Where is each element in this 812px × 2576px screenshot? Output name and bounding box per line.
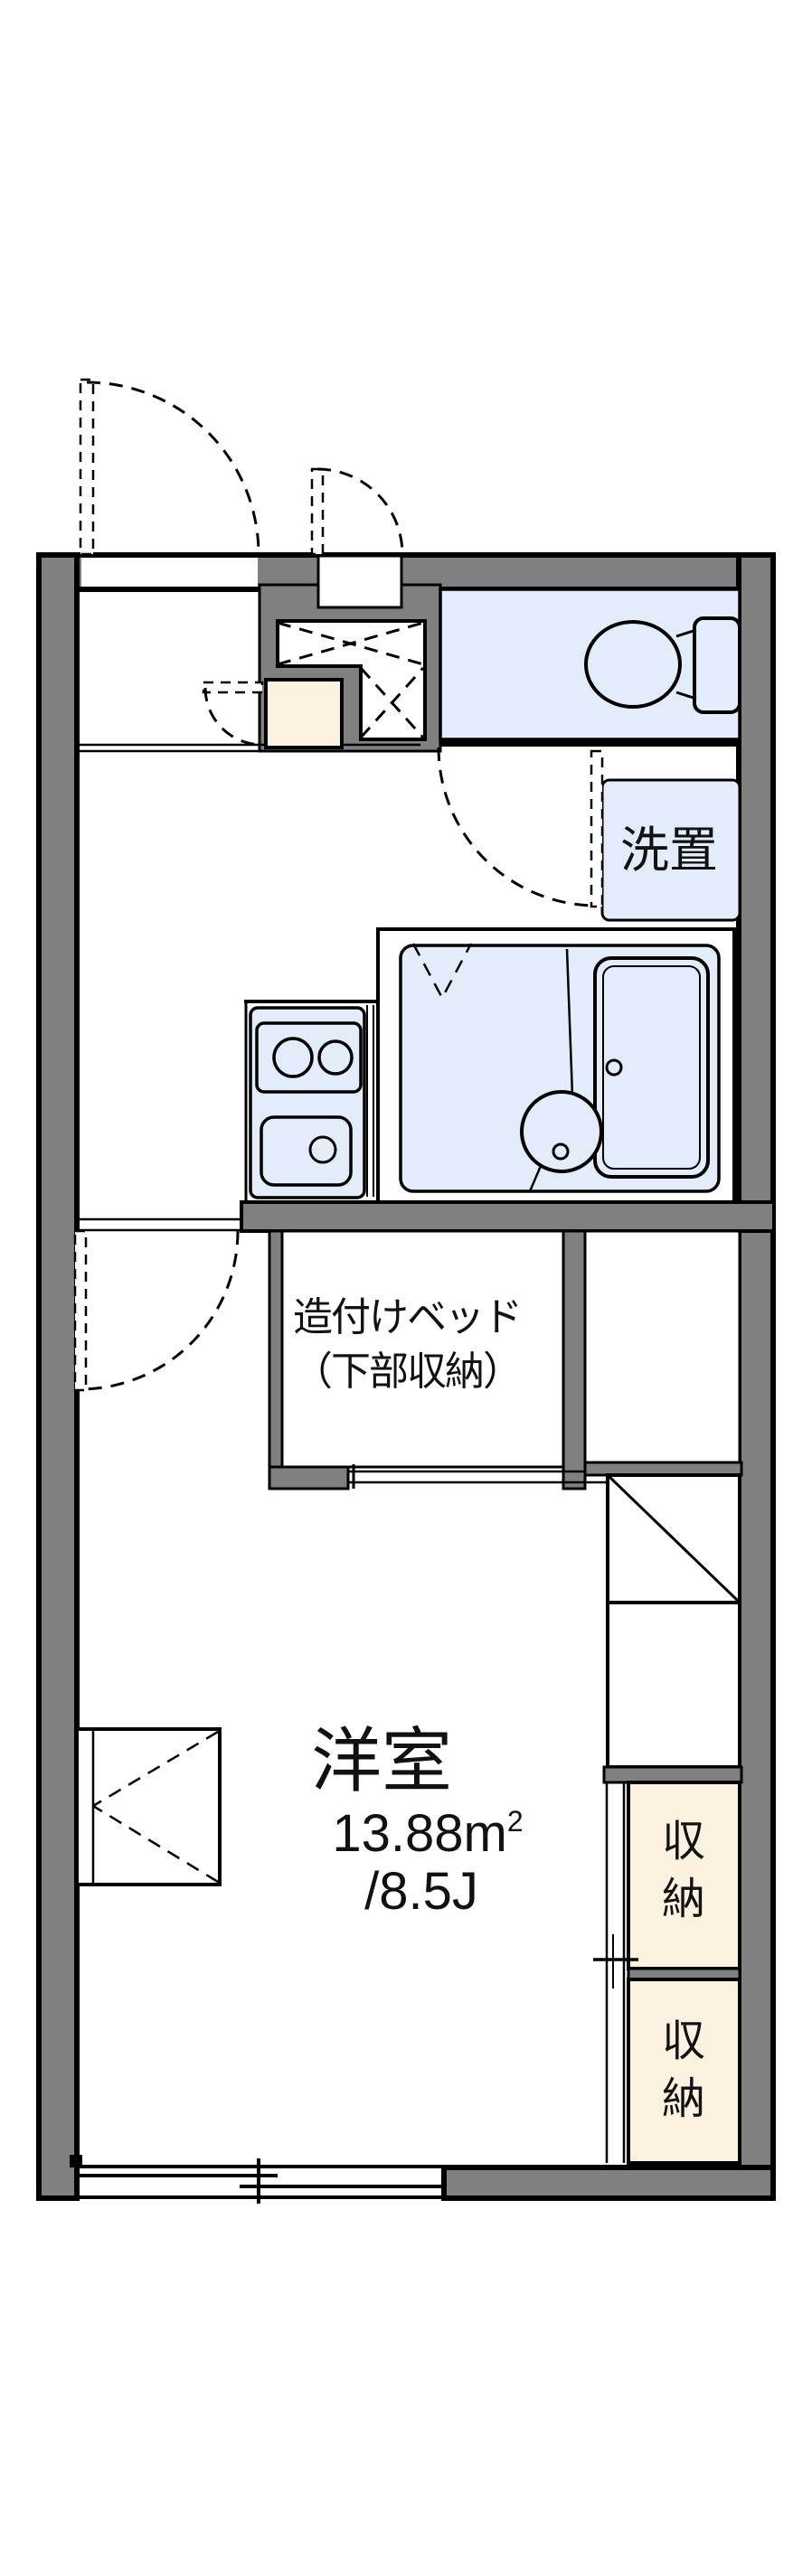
closet-lower [628, 1979, 740, 2163]
bottom-wall [447, 2170, 770, 2195]
main-room-area: 13.88m2 [332, 1804, 523, 1863]
bath-sink-drain [553, 1144, 568, 1159]
corridor-door-leaf [591, 751, 602, 907]
toilet-tank [694, 618, 740, 712]
fridge-top-wall-band [585, 1462, 741, 1475]
washer-space-label: 洗置 [620, 823, 718, 878]
stove-burner-left [274, 1039, 312, 1076]
closet-upper-label-char2: 納 [662, 1876, 705, 1923]
kitchen-faucet [310, 1137, 335, 1162]
main-room-area-superscript: 2 [507, 1805, 524, 1838]
window-side-box [77, 1729, 220, 1885]
hall-door-leaf [203, 682, 262, 692]
bed-bottom-wall [269, 1467, 348, 1489]
main-room-area-value: 13.88m [332, 1804, 506, 1863]
closet-top-wall-stub [604, 1767, 741, 1782]
toilet-bowl [586, 622, 680, 707]
bathtub-drain [607, 1060, 621, 1075]
entrance-door-leaf [80, 380, 93, 554]
bed-top-wall-band [241, 1202, 774, 1231]
floor-plan-drawing: 洗置 造付けベッド （下部収納） 収 納 収 納 [0, 0, 812, 2576]
bed-right-wall [563, 1231, 585, 1489]
main-room-door-leaf [75, 1231, 86, 1390]
bed-left-wall [269, 1231, 282, 1489]
stove-burner-right [319, 1041, 352, 1074]
closet-lower-label-char1: 収 [662, 2017, 705, 2065]
shoe-cabinet [266, 680, 342, 747]
floor-plan-page: 洗置 造付けベッド （下部収納） 収 納 収 納 [0, 0, 812, 2576]
toilet-front-wall [440, 739, 740, 747]
meterbox-door-leaf [312, 469, 323, 554]
meter-box-recess [318, 556, 401, 607]
main-room-tatami: /8.5J [364, 1862, 478, 1921]
open-shelf-space [608, 1603, 740, 1767]
entrance-door-opening [81, 558, 258, 587]
closet-lower-label-char2: 納 [662, 2075, 705, 2123]
closet-upper-label-char1: 収 [662, 1818, 705, 1866]
left-wall [42, 558, 74, 2195]
bed-label-line2: （下部収納） [293, 1349, 521, 1394]
bed-label-line1: 造付けベッド [293, 1295, 521, 1340]
main-room-name: 洋室 [311, 1721, 452, 1800]
counter-nook-area [585, 1231, 740, 1462]
right-wall [741, 558, 770, 2195]
kitchen-sink [261, 1117, 351, 1185]
